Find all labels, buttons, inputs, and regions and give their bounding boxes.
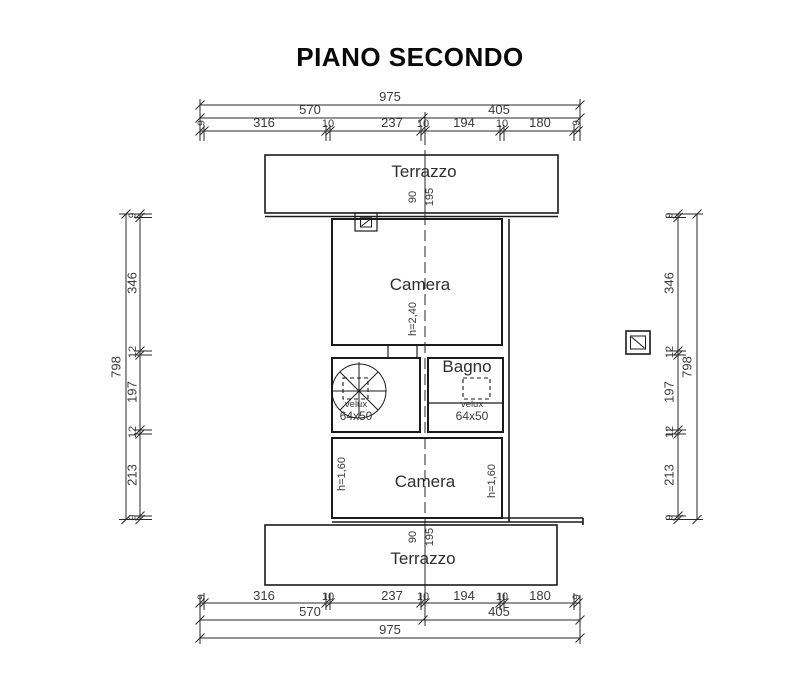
stairs-velux-size: 64x50: [340, 409, 373, 423]
dim-bottom-seg-0: 9: [197, 594, 208, 600]
camera-top-height-label: h=2,40: [407, 302, 419, 336]
dim-left-seg-4: 12: [127, 426, 139, 438]
dim-right-seg-6: 9: [665, 514, 676, 520]
dim-right-seg-1: 346: [661, 272, 676, 294]
dim-top-405: 405: [488, 102, 510, 117]
dim-bottom-seg-2: 10: [322, 591, 334, 603]
dim-top-seg-5: 194: [453, 115, 475, 130]
dim-left-seg-6: 9: [128, 514, 139, 520]
dim-bottom-seg-1: 316: [253, 588, 275, 603]
top-dimension-chain: 975 570 405 9 316 10 237 10 194 10 180 9: [196, 89, 585, 141]
dim-top-seg-6: 10: [496, 118, 508, 130]
dim-left-seg-0: 9: [128, 212, 139, 218]
window-legend-icon: [626, 331, 650, 354]
bagno-velux-outline: [463, 378, 490, 399]
camera-bottom-height-left: h=1,60: [336, 457, 348, 491]
dim-left-seg-5: 213: [124, 464, 139, 486]
dim-top-seg-2: 10: [322, 118, 334, 130]
dim-top-seg-1: 316: [253, 115, 275, 130]
dim-left-seg-1: 346: [124, 272, 139, 294]
dim-top-seg-4: 10: [417, 118, 429, 130]
dim-bottom-405: 405: [488, 604, 510, 619]
camera-bottom-room: Camera h=1,60 h=1,60: [332, 438, 583, 525]
dim-top-seg-8: 9: [572, 120, 583, 126]
floorplan-drawing: PIANO SECONDO 975 570 405 9 316: [0, 0, 809, 689]
axis-bottom-90: 90: [407, 531, 419, 543]
dim-bottom-seg-4: 10: [417, 591, 429, 603]
dim-bottom-total: 975: [379, 622, 401, 637]
dim-right-seg-4: 12: [664, 426, 676, 438]
floorplan-page: PIANO SECONDO 975 570 405 9 316: [0, 0, 809, 689]
dim-right-seg-3: 197: [661, 381, 676, 403]
dim-bottom-seg-8: 9: [572, 594, 583, 600]
dim-right-seg-0: 9: [665, 212, 676, 218]
dim-bottom-seg-7: 180: [529, 588, 551, 603]
dim-bottom-570: 570: [299, 604, 321, 619]
axis-bottom-195: 195: [424, 528, 436, 546]
dim-left-total: 798: [108, 356, 123, 378]
dim-top-seg-7: 180: [529, 115, 551, 130]
bagno-room: Bagno velux 64x50: [428, 357, 503, 432]
terrace-top-label: Terrazzo: [391, 162, 456, 181]
left-dimension-chain: 798 9 346 12 197 12 213 9: [108, 210, 152, 525]
dim-bottom-seg-6: 10: [496, 591, 508, 603]
dim-top-seg-0: 9: [197, 120, 208, 126]
right-dimension-chain: 798 9 346 12 197 12 213 9: [626, 210, 703, 525]
terrace-bottom-label: Terrazzo: [390, 549, 455, 568]
dim-top-total: 975: [379, 89, 401, 104]
camera-bottom-label: Camera: [395, 472, 456, 491]
bagno-label: Bagno: [442, 357, 491, 376]
stair-room: velux 64x50: [332, 358, 420, 432]
dim-top-570: 570: [299, 102, 321, 117]
dim-left-seg-3: 197: [124, 381, 139, 403]
page-title: PIANO SECONDO: [296, 42, 524, 72]
bagno-velux-size: 64x50: [456, 409, 489, 423]
camera-bottom-height-right: h=1,60: [486, 464, 498, 498]
dim-right-total: 798: [679, 356, 694, 378]
terrace-bottom: 90 195 Terrazzo: [265, 525, 557, 585]
dim-top-seg-3: 237: [381, 115, 403, 130]
dim-left-seg-2: 12: [127, 346, 139, 358]
camera-top-label: Camera: [390, 275, 451, 294]
axis-top-195: 195: [424, 188, 436, 206]
dim-right-seg-5: 213: [661, 464, 676, 486]
dim-right-seg-2: 12: [664, 346, 676, 358]
terrace-top: Terrazzo 90 195: [265, 155, 558, 217]
dim-bottom-seg-5: 194: [453, 588, 475, 603]
bottom-dimension-chain: 9 316 10 237 10 194 10 180 9 570 405 975: [196, 588, 585, 644]
axis-top-90: 90: [407, 191, 419, 203]
dim-bottom-seg-3: 237: [381, 588, 403, 603]
